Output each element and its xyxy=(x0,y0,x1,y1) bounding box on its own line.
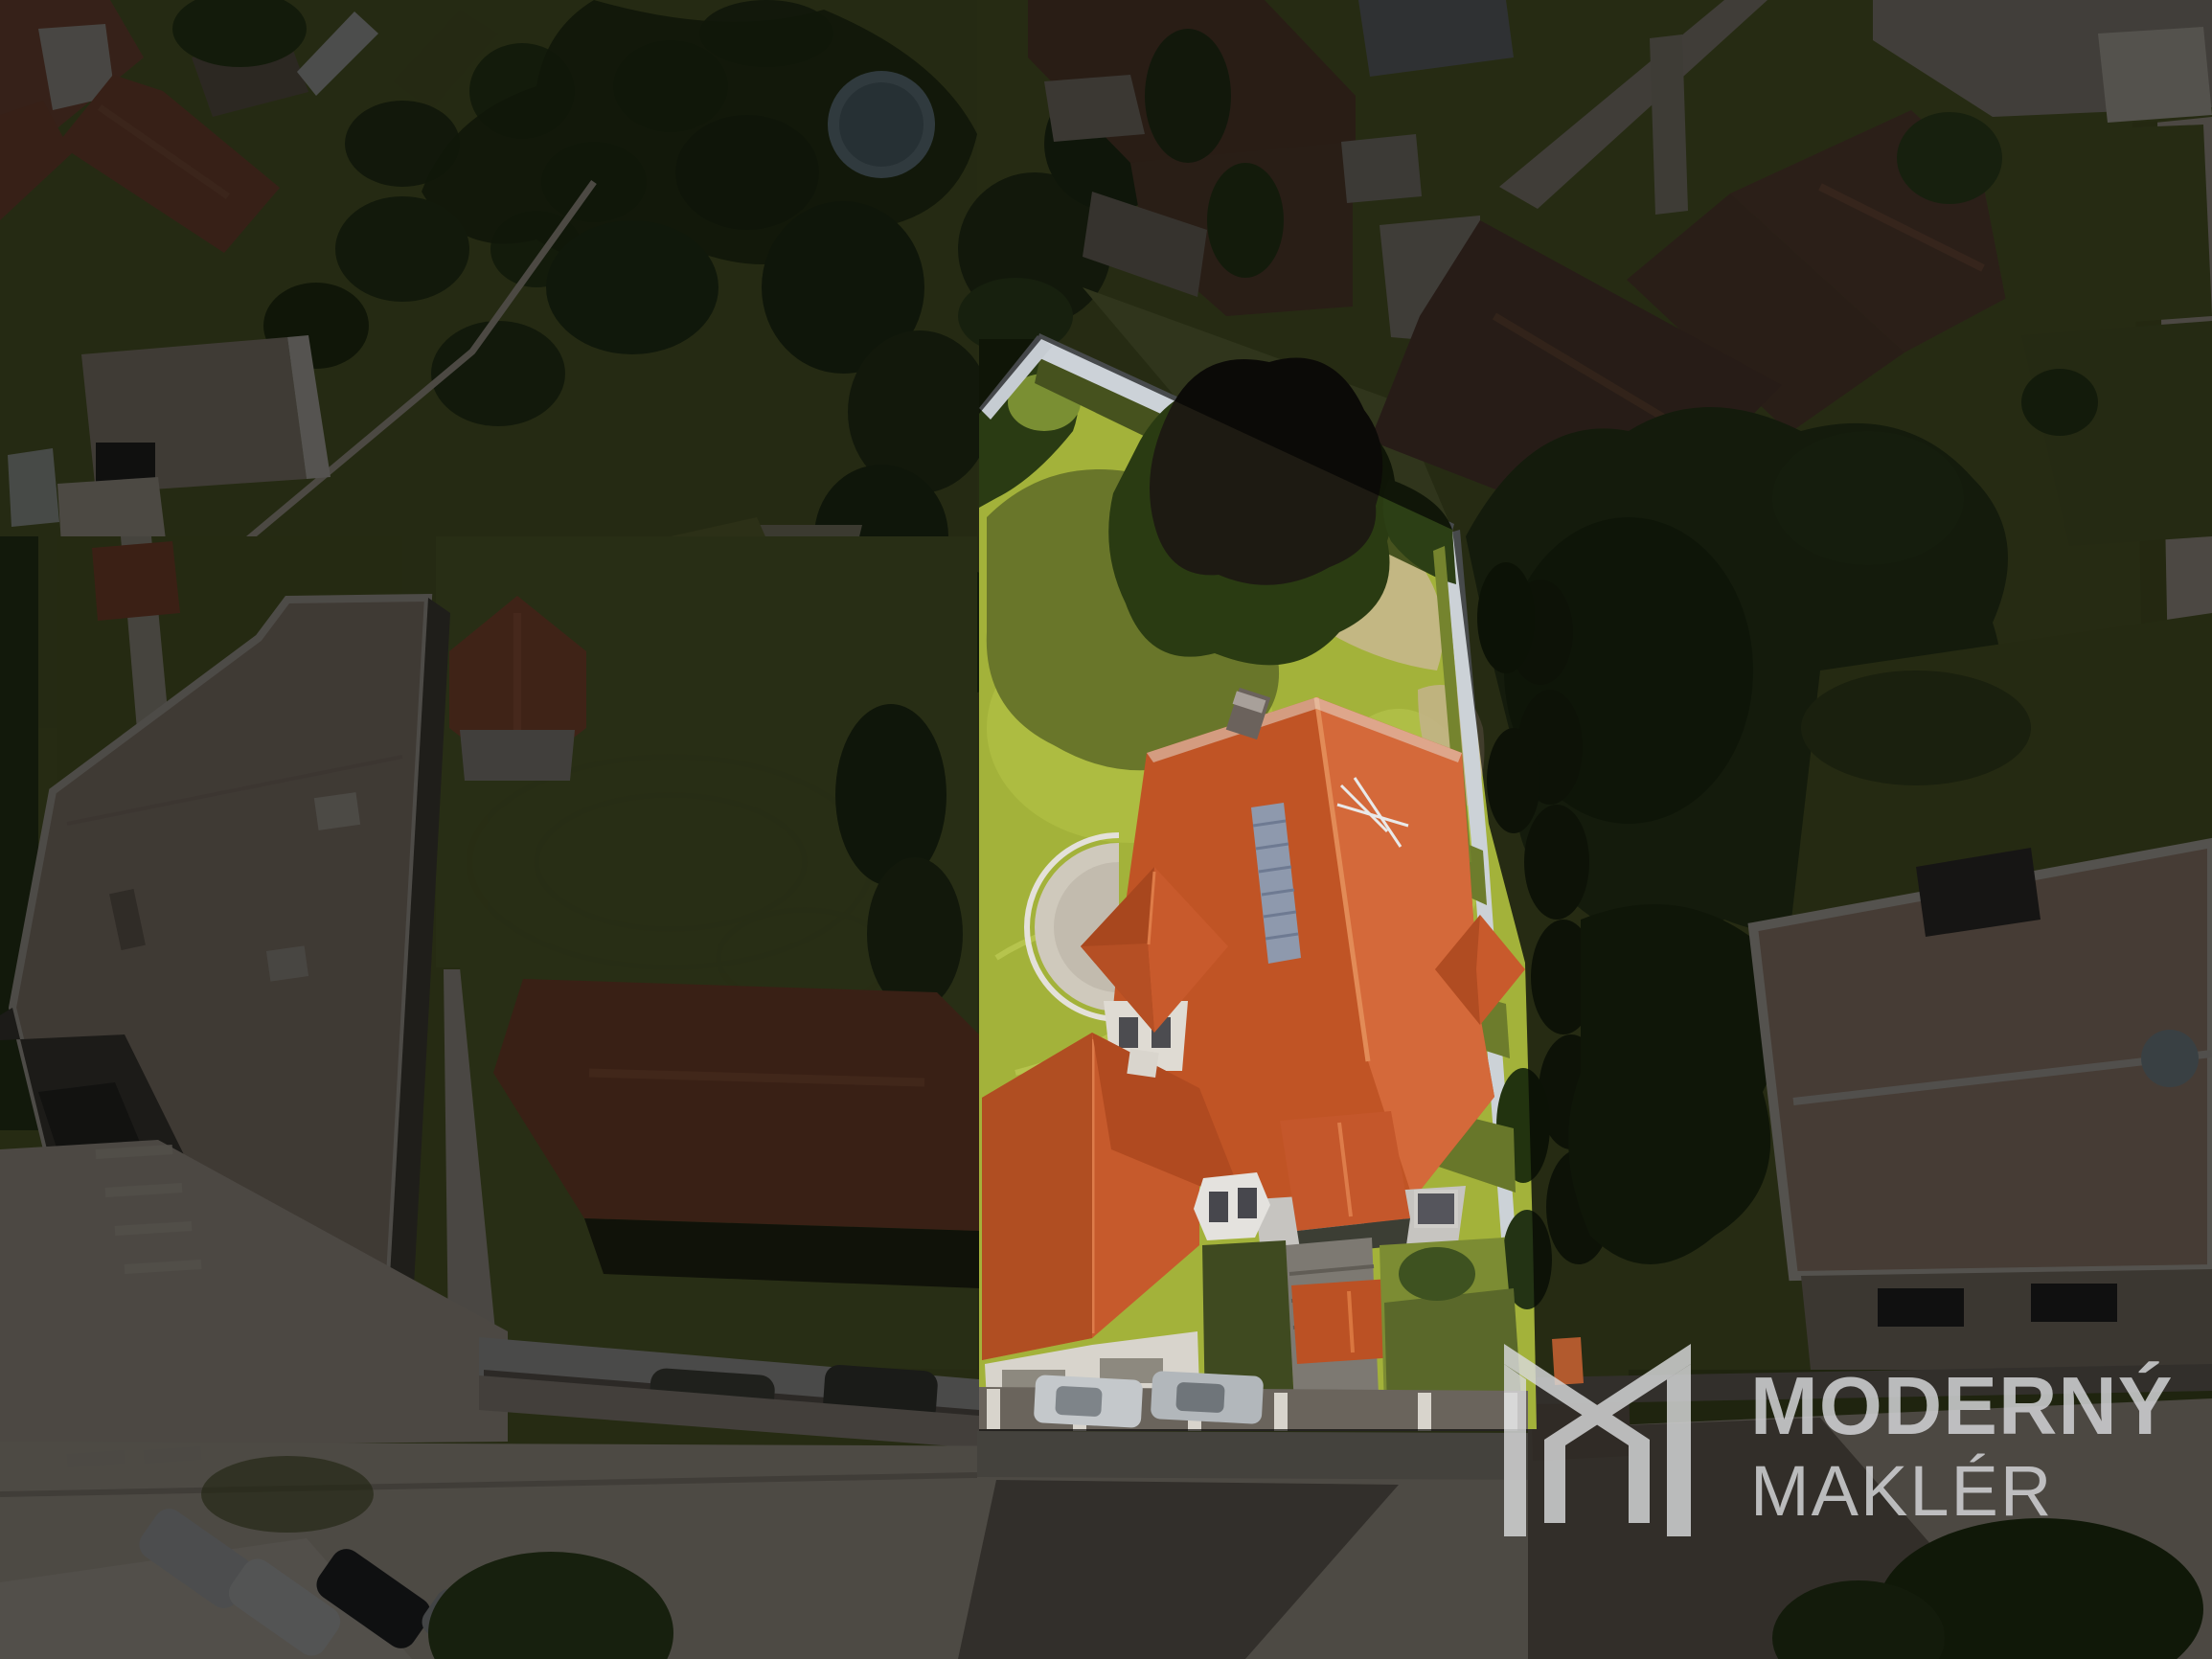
svg-text:MAKLÉR: MAKLÉR xyxy=(1750,1451,2053,1531)
svg-text:MODERNÝ: MODERNÝ xyxy=(1750,1361,2173,1452)
